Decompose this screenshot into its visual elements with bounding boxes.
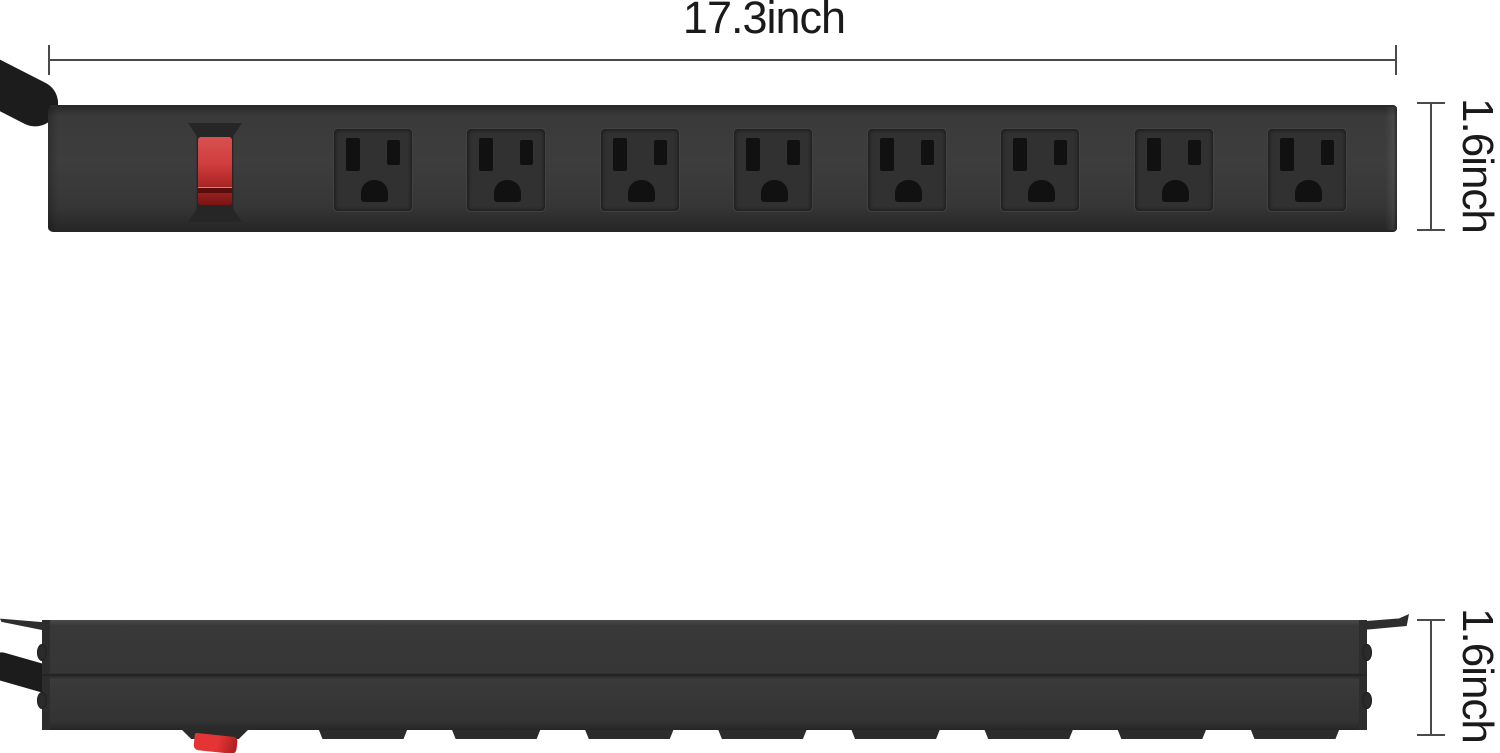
mounting-ear-right	[1363, 614, 1409, 630]
outlet-module-tab-row	[318, 730, 1340, 739]
outlet-neutral-slot	[1013, 138, 1027, 171]
front-height-dimension-label: 1.6inch	[1452, 98, 1500, 233]
front-right-endcap	[1385, 107, 1397, 230]
outlet-module-tab	[1117, 730, 1207, 739]
outlet-module-tab	[451, 730, 541, 739]
outlet-ground-hole	[1162, 180, 1189, 202]
outlet-neutral-slot	[346, 138, 360, 171]
width-dimension-right-tick	[1395, 45, 1397, 75]
power-switch-side	[193, 733, 238, 753]
outlet-ground-hole	[494, 180, 521, 202]
outlet-hot-slot	[787, 140, 800, 165]
outlet-row	[333, 128, 1347, 212]
outlet-neutral-slot	[880, 138, 894, 171]
power-switch-ridge	[198, 187, 232, 193]
outlet-hot-slot	[1188, 140, 1201, 165]
side-height-dimension-label: 1.6inch	[1452, 608, 1500, 743]
outlet-module-tab	[984, 730, 1074, 739]
width-dimension-line	[49, 59, 1396, 61]
outlet-module-tab	[584, 730, 674, 739]
endcap-screw	[37, 692, 47, 709]
power-strip-front-view	[48, 105, 1397, 232]
endcap-screw	[37, 644, 47, 661]
outlet	[1134, 128, 1214, 212]
outlet-ground-hole	[1028, 180, 1055, 202]
front-height-top-tick	[1417, 102, 1445, 104]
endcap-screw	[1362, 644, 1372, 661]
product-dimension-image: 17.3inch 1.6inch	[0, 0, 1500, 753]
front-left-endcap	[48, 107, 58, 230]
outlet-neutral-slot	[1147, 138, 1161, 171]
outlet	[733, 128, 813, 212]
outlet-hot-slot	[921, 140, 934, 165]
outlet-module-tab	[1250, 730, 1340, 739]
mounting-ear-left	[0, 618, 47, 631]
side-height-top-tick	[1417, 619, 1445, 621]
front-height-dimension-line	[1430, 103, 1432, 230]
outlet-hot-slot	[387, 140, 400, 165]
outlet-ground-hole	[761, 180, 788, 202]
outlet-neutral-slot	[1280, 138, 1294, 171]
width-dimension-left-tick	[48, 45, 50, 75]
side-height-bottom-tick	[1417, 734, 1445, 736]
outlet-neutral-slot	[613, 138, 627, 171]
outlet-hot-slot	[1054, 140, 1067, 165]
side-housing-seam	[42, 674, 1367, 676]
outlet	[600, 128, 680, 212]
outlet-hot-slot	[520, 140, 533, 165]
outlet	[1267, 128, 1347, 212]
outlet	[1000, 128, 1080, 212]
outlet-neutral-slot	[746, 138, 760, 171]
outlet-ground-hole	[1295, 180, 1322, 202]
outlet-hot-slot	[1321, 140, 1334, 165]
outlet-neutral-slot	[479, 138, 493, 171]
outlet-ground-hole	[628, 180, 655, 202]
outlet-module-tab	[717, 730, 807, 739]
outlet	[867, 128, 947, 212]
outlet-ground-hole	[361, 180, 388, 202]
outlet-module-tab	[318, 730, 408, 739]
outlet-ground-hole	[895, 180, 922, 202]
side-height-dimension-line	[1430, 619, 1432, 735]
front-height-bottom-tick	[1417, 229, 1445, 231]
outlet	[466, 128, 546, 212]
endcap-screw	[1362, 692, 1372, 709]
power-switch-rocker	[198, 137, 232, 205]
width-dimension-label: 17.3inch	[599, 0, 929, 44]
power-strip-side-view	[42, 620, 1367, 730]
outlet-hot-slot	[654, 140, 667, 165]
outlet-module-tab	[851, 730, 941, 739]
outlet	[333, 128, 413, 212]
